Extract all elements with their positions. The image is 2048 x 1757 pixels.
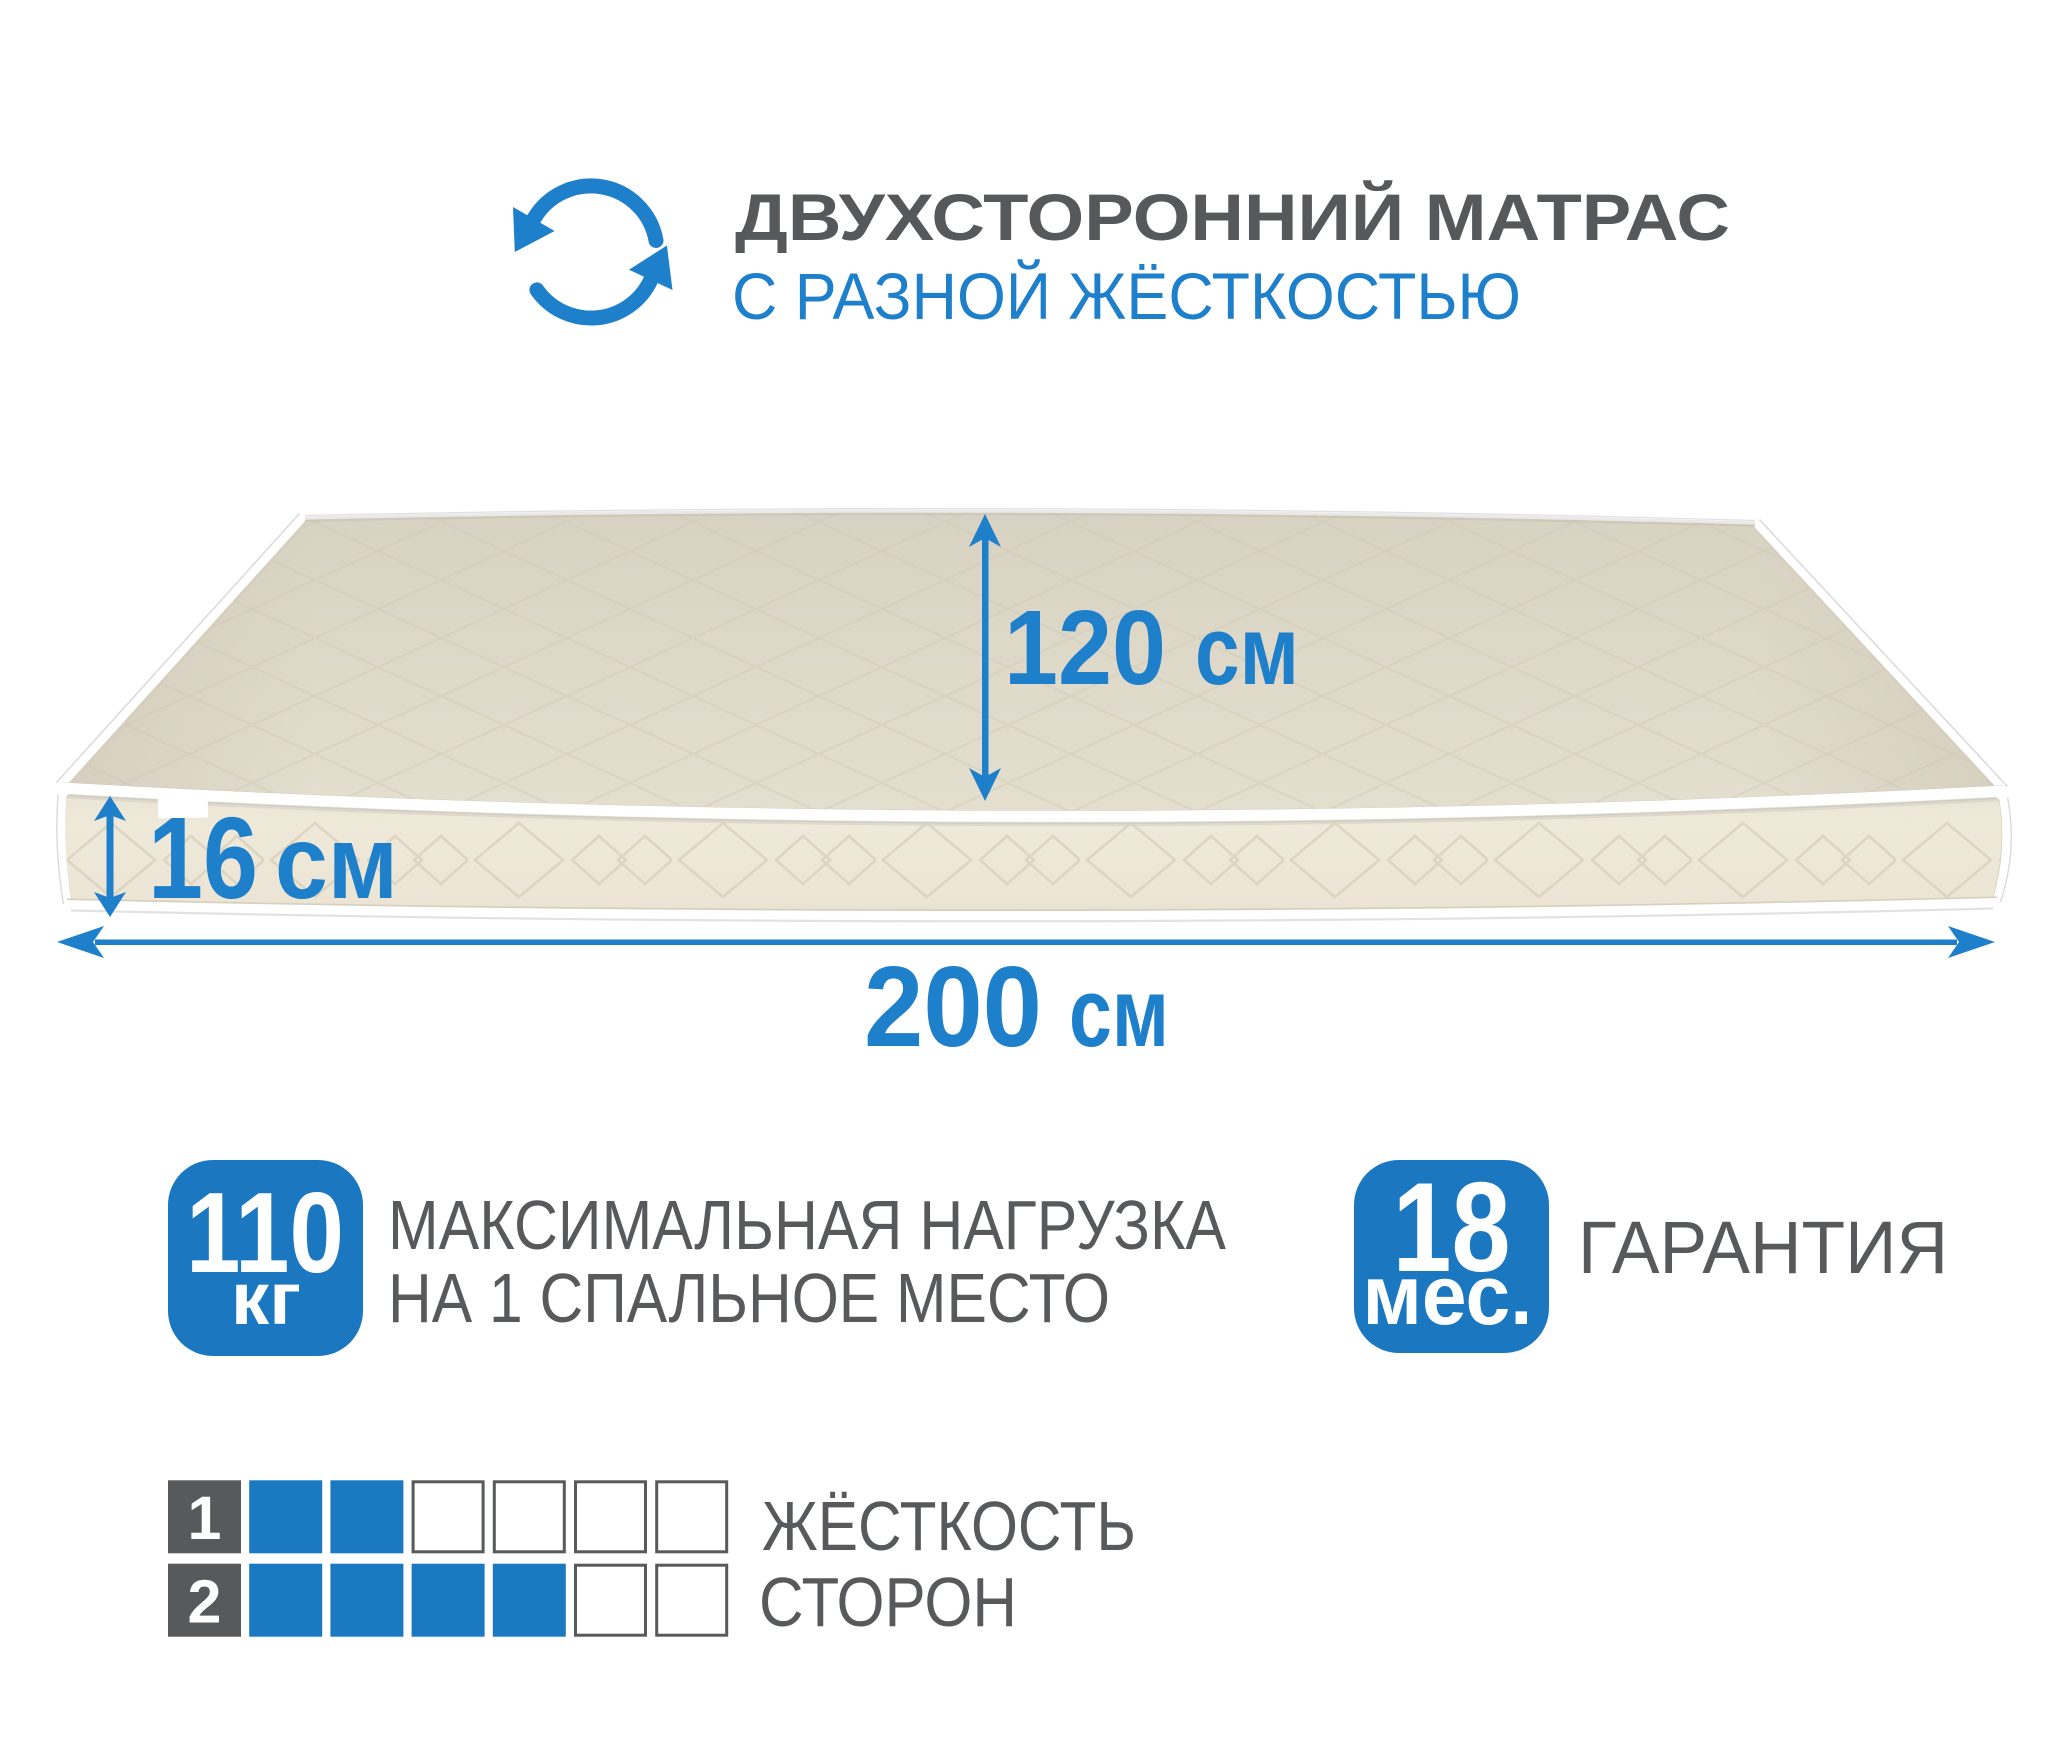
svg-text:НА 1 СПАЛЬНОЕ МЕСТО: НА 1 СПАЛЬНОЕ МЕСТО [388, 1259, 1110, 1337]
svg-text:ГАРАНТИЯ: ГАРАНТИЯ [1578, 1206, 1948, 1289]
svg-text:мес.: мес. [1363, 1248, 1533, 1342]
svg-text:16: 16 [148, 793, 258, 923]
svg-text:С РАЗНОЙ ЖЁСТКОСТЬЮ: С РАЗНОЙ ЖЁСТКОСТЬЮ [732, 258, 1521, 333]
svg-text:кг: кг [231, 1257, 301, 1340]
svg-text:см: см [275, 805, 398, 921]
svg-text:СТОРОН: СТОРОН [759, 1563, 1017, 1641]
svg-text:2: 2 [188, 1568, 222, 1636]
svg-text:1: 1 [188, 1484, 222, 1552]
svg-text:МАКСИМАЛЬНАЯ НАГРУЗКА: МАКСИМАЛЬНАЯ НАГРУЗКА [388, 1186, 1226, 1264]
svg-text:см: см [1195, 596, 1299, 705]
svg-text:200: 200 [864, 944, 1042, 1071]
svg-text:ЖЁСТКОСТЬ: ЖЁСТКОСТЬ [762, 1487, 1136, 1565]
svg-text:120: 120 [1004, 589, 1166, 707]
svg-text:ДВУХСТОРОННИЙ МАТРАС: ДВУХСТОРОННИЙ МАТРАС [735, 179, 1730, 254]
svg-text:см: см [1069, 958, 1169, 1067]
